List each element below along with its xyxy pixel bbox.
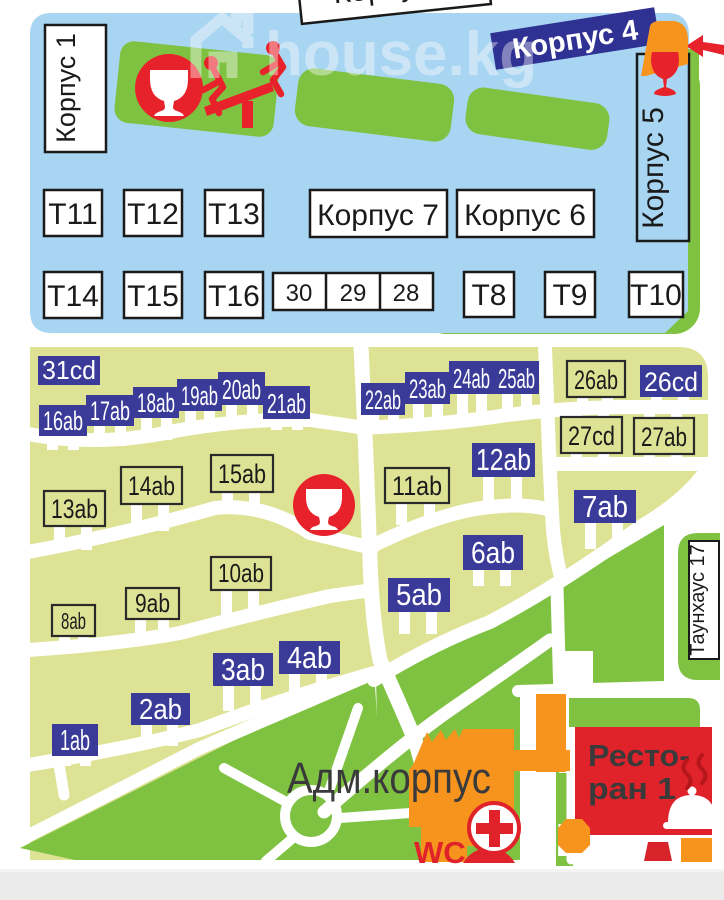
- svg-text:26cd: 26cd: [644, 367, 698, 397]
- svg-text:28: 28: [393, 280, 420, 307]
- svg-text:26ab: 26ab: [574, 365, 618, 395]
- svg-text:19ab: 19ab: [181, 381, 218, 411]
- svg-text:23ab: 23ab: [409, 374, 446, 404]
- svg-text:Корпус 7: Корпус 7: [317, 199, 439, 232]
- svg-text:1ab: 1ab: [60, 725, 90, 757]
- svg-text:Корпус 1: Корпус 1: [51, 33, 81, 143]
- svg-text:27cd: 27cd: [568, 421, 615, 451]
- svg-text:16ab: 16ab: [43, 406, 83, 436]
- svg-text:T16: T16: [208, 280, 260, 313]
- svg-text:3ab: 3ab: [221, 652, 265, 687]
- svg-text:5ab: 5ab: [396, 577, 442, 612]
- svg-text:WC: WC: [414, 835, 466, 870]
- svg-text:Таунхаус 17: Таунхаус 17: [687, 544, 709, 656]
- svg-text:T11: T11: [48, 198, 97, 231]
- svg-text:14ab: 14ab: [128, 471, 175, 501]
- svg-text:7ab: 7ab: [582, 489, 628, 524]
- svg-text:ран 1: ран 1: [588, 771, 676, 806]
- svg-text:21ab: 21ab: [267, 388, 306, 419]
- svg-text:T10: T10: [630, 279, 682, 312]
- svg-text:9ab: 9ab: [135, 588, 170, 618]
- svg-text:T9: T9: [552, 279, 587, 312]
- svg-text:T8: T8: [471, 279, 506, 312]
- svg-text:8ab: 8ab: [61, 608, 86, 634]
- svg-text:T13: T13: [208, 198, 260, 231]
- svg-text:29: 29: [340, 280, 367, 307]
- svg-text:Корпус 5: Корпус 5: [637, 107, 670, 229]
- svg-text:25ab: 25ab: [498, 363, 535, 394]
- svg-text:house.kg: house.kg: [265, 20, 537, 89]
- svg-text:27ab: 27ab: [641, 422, 687, 452]
- svg-text:30: 30: [286, 280, 313, 307]
- svg-text:2ab: 2ab: [139, 694, 182, 726]
- svg-text:22ab: 22ab: [365, 385, 401, 415]
- svg-text:31cd: 31cd: [42, 355, 96, 385]
- svg-text:11ab: 11ab: [392, 471, 442, 501]
- svg-text:T15: T15: [127, 280, 179, 313]
- svg-text:Ресто-: Ресто-: [588, 738, 690, 773]
- svg-text:T14: T14: [47, 280, 99, 313]
- svg-text:13ab: 13ab: [51, 494, 98, 524]
- svg-text:20ab: 20ab: [222, 374, 261, 405]
- svg-text:10ab: 10ab: [218, 558, 264, 588]
- svg-text:12ab: 12ab: [476, 442, 531, 477]
- svg-text:Корпус 6: Корпус 6: [464, 199, 586, 232]
- svg-text:6ab: 6ab: [471, 535, 515, 570]
- svg-text:4ab: 4ab: [287, 640, 332, 675]
- svg-text:15ab: 15ab: [218, 459, 266, 489]
- svg-text:17ab: 17ab: [90, 396, 130, 426]
- svg-text:T12: T12: [127, 198, 179, 231]
- svg-text:Адм.корпус: Адм.корпус: [287, 754, 491, 803]
- svg-text:18ab: 18ab: [137, 388, 175, 418]
- svg-text:24ab: 24ab: [453, 363, 490, 394]
